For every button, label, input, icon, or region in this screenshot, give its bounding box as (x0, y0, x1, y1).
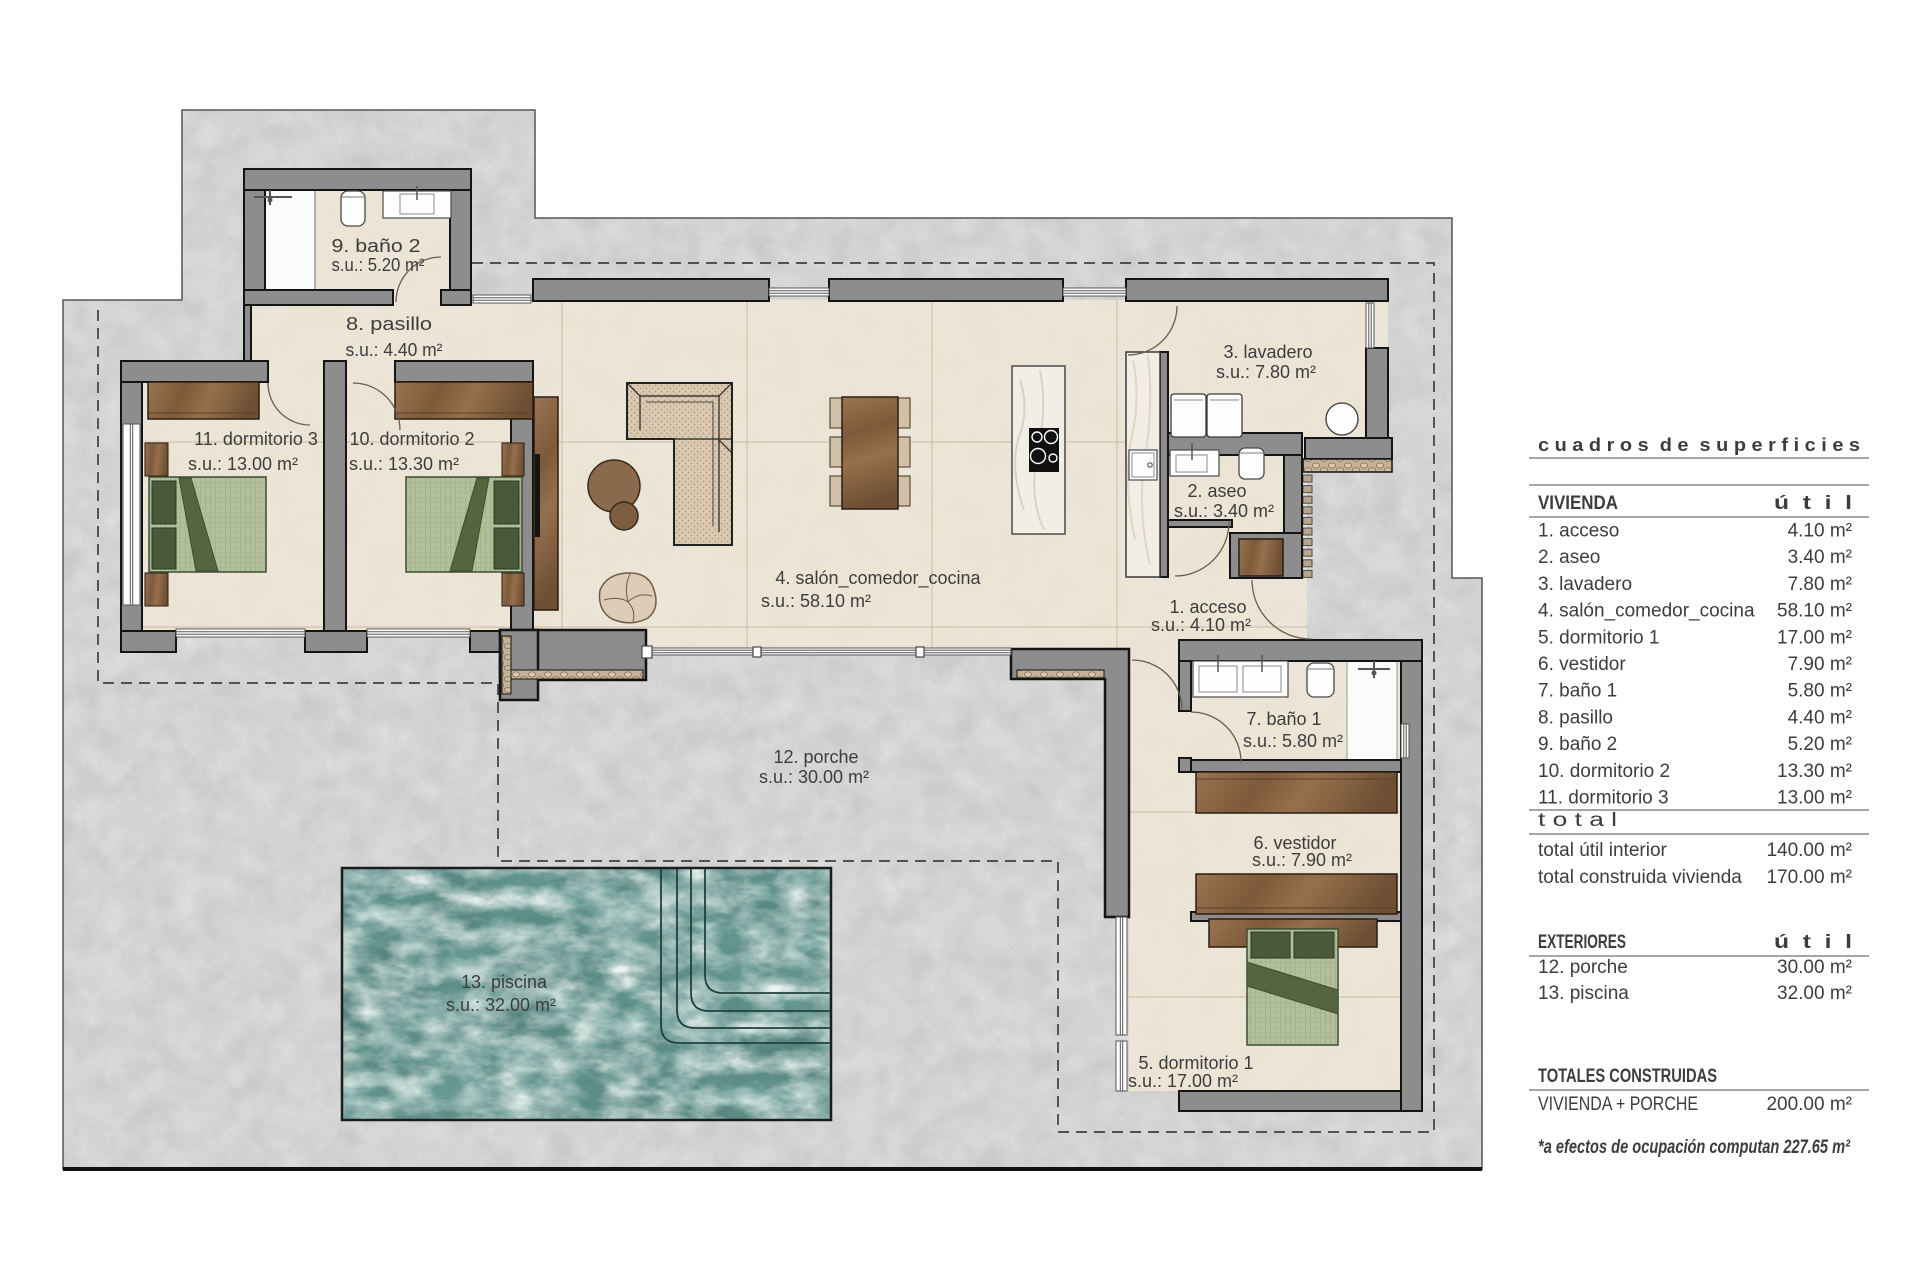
svg-text:s.u.: 5.20 m²: s.u.: 5.20 m² (332, 255, 425, 275)
svg-text:s.u.: 3.40 m²: s.u.: 3.40 m² (1174, 501, 1274, 521)
svg-text:s.u.: 17.00 m²: s.u.: 17.00 m² (1128, 1071, 1238, 1091)
svg-text:s.u.: 30.00 m²: s.u.: 30.00 m² (759, 767, 869, 787)
svg-text:10. dormitorio 2: 10. dormitorio 2 (1538, 761, 1670, 782)
svg-text:s.u.: 7.80 m²: s.u.: 7.80 m² (1216, 362, 1316, 382)
svg-text:5.20 m²: 5.20 m² (1788, 734, 1852, 755)
svg-text:30.00 m²: 30.00 m² (1777, 957, 1852, 978)
svg-text:8. pasillo: 8. pasillo (346, 314, 432, 334)
svg-text:s.u.: 32.00 m²: s.u.: 32.00 m² (446, 995, 556, 1015)
svg-text:13. piscina: 13. piscina (461, 972, 548, 992)
svg-text:12. porche: 12. porche (773, 747, 858, 767)
svg-text:total construida vivienda: total construida vivienda (1538, 867, 1742, 888)
svg-text:140.00 m²: 140.00 m² (1766, 840, 1852, 861)
svg-text:8. pasillo: 8. pasillo (1538, 707, 1613, 728)
svg-text:4.10 m²: 4.10 m² (1788, 521, 1852, 542)
svg-text:4. salón_comedor_cocina: 4. salón_comedor_cocina (775, 568, 981, 589)
svg-text:t o t a l: t o t a l (1538, 810, 1617, 831)
svg-text:s.u.: 5.80 m²: s.u.: 5.80 m² (1243, 731, 1343, 751)
svg-text:s.u.: 13.00 m²: s.u.: 13.00 m² (188, 454, 298, 474)
svg-text:10. dormitorio 2: 10. dormitorio 2 (349, 429, 474, 449)
svg-text:7. baño 1: 7. baño 1 (1246, 709, 1321, 729)
svg-text:3.40 m²: 3.40 m² (1788, 547, 1852, 568)
svg-text:170.00 m²: 170.00 m² (1766, 867, 1852, 888)
svg-text:5.80 m²: 5.80 m² (1788, 681, 1852, 702)
svg-text:EXTERIORES: EXTERIORES (1538, 932, 1626, 953)
svg-text:7.80 m²: 7.80 m² (1788, 574, 1852, 595)
svg-text:7. baño 1: 7. baño 1 (1538, 681, 1617, 702)
svg-text:12. porche: 12. porche (1538, 957, 1628, 978)
svg-text:VIVIENDA: VIVIENDA (1538, 493, 1618, 514)
svg-text:7.90 m²: 7.90 m² (1788, 654, 1852, 675)
svg-text:4. salón_comedor_cocina: 4. salón_comedor_cocina (1538, 601, 1755, 622)
svg-text:total útil interior: total útil interior (1538, 840, 1668, 861)
svg-text:4.40 m²: 4.40 m² (1788, 707, 1852, 728)
svg-text:58.10 m²: 58.10 m² (1777, 601, 1852, 622)
svg-text:s.u.: 13.30 m²: s.u.: 13.30 m² (349, 454, 459, 474)
svg-text:c u a d r o s d e s u p e r: c u a d r o s d e s u p e r f i c i e s (1538, 435, 1860, 455)
svg-text:VIVIENDA + PORCHE: VIVIENDA + PORCHE (1538, 1094, 1698, 1115)
svg-text:13.30 m²: 13.30 m² (1777, 761, 1852, 782)
svg-text:2. aseo: 2. aseo (1538, 547, 1600, 568)
svg-text:s.u.: 4.10 m²: s.u.: 4.10 m² (1151, 615, 1251, 635)
svg-text:*a efectos de ocupación comput: *a efectos de ocupación computan 227.65 … (1538, 1137, 1851, 1158)
svg-text:11. dormitorio 3: 11. dormitorio 3 (194, 429, 318, 449)
svg-text:1. acceso: 1. acceso (1538, 521, 1619, 542)
svg-text:s.u.: 7.90 m²: s.u.: 7.90 m² (1252, 850, 1352, 870)
svg-text:2. aseo: 2. aseo (1187, 481, 1246, 501)
svg-text:3. lavadero: 3. lavadero (1223, 342, 1312, 362)
svg-text:5. dormitorio 1: 5. dormitorio 1 (1138, 1053, 1253, 1073)
svg-text:32.00 m²: 32.00 m² (1777, 983, 1852, 1004)
svg-text:ú t i l: ú t i l (1774, 493, 1852, 514)
svg-text:9. baño 2: 9. baño 2 (332, 236, 421, 256)
svg-text:13. piscina: 13. piscina (1538, 983, 1629, 1004)
svg-text:6. vestidor: 6. vestidor (1538, 654, 1626, 675)
svg-text:s.u.: 4.40 m²: s.u.: 4.40 m² (346, 340, 443, 360)
svg-text:13.00 m²: 13.00 m² (1777, 788, 1852, 809)
svg-text:1. acceso: 1. acceso (1169, 597, 1246, 617)
svg-text:s.u.: 58.10 m²: s.u.: 58.10 m² (761, 591, 871, 611)
svg-text:200.00 m²: 200.00 m² (1766, 1094, 1852, 1115)
svg-text:ú t i l: ú t i l (1774, 932, 1852, 953)
svg-text:17.00 m²: 17.00 m² (1777, 627, 1852, 648)
svg-text:9. baño 2: 9. baño 2 (1538, 734, 1617, 755)
svg-text:5. dormitorio 1: 5. dormitorio 1 (1538, 627, 1659, 648)
svg-text:TOTALES CONSTRUIDAS: TOTALES CONSTRUIDAS (1538, 1066, 1717, 1087)
svg-text:3. lavadero: 3. lavadero (1538, 574, 1632, 595)
svg-text:11. dormitorio 3: 11. dormitorio 3 (1538, 788, 1669, 809)
